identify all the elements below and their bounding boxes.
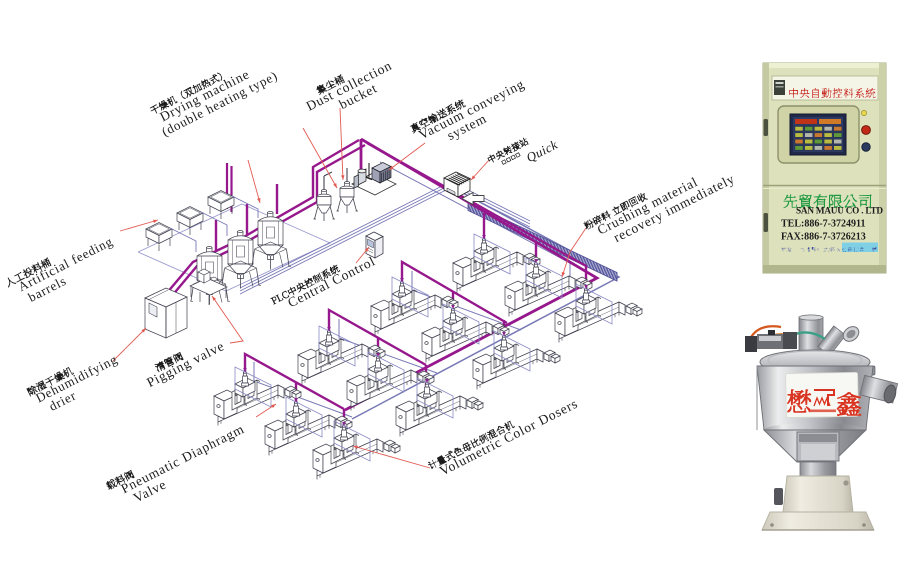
svg-text:FAX:886-7-3726213: FAX:886-7-3726213 — [781, 232, 866, 243]
svg-text:SAN MAUU CO . LTD: SAN MAUU CO . LTD — [796, 206, 883, 216]
svg-text:TEL:886-7-3724911: TEL:886-7-3724911 — [781, 219, 865, 230]
